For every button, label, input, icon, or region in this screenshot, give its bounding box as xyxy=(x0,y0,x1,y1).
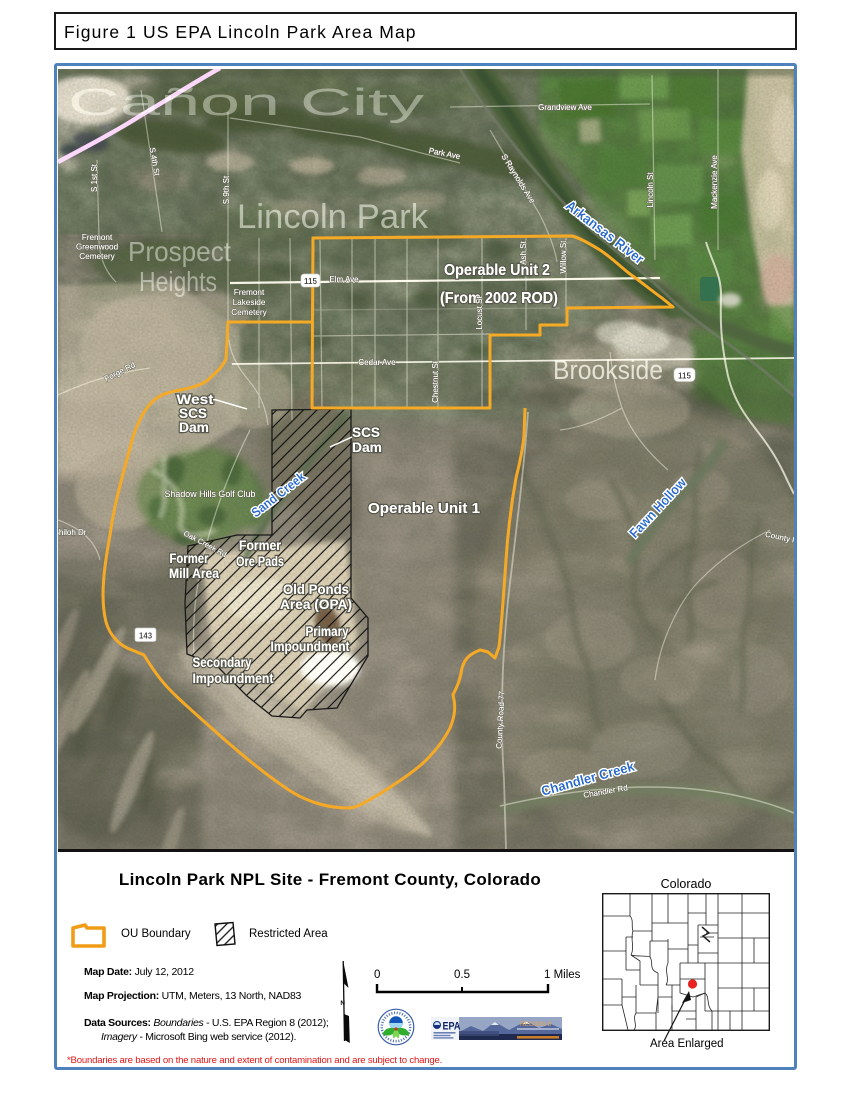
svg-text:Dam: Dam xyxy=(179,419,209,435)
svg-text:Lincoln Park: Lincoln Park xyxy=(237,198,429,236)
svg-text:Locust St: Locust St xyxy=(475,296,484,330)
svg-text:Mackenzie Ave: Mackenzie Ave xyxy=(710,155,719,209)
svg-text:Old Ponds: Old Ponds xyxy=(283,582,349,597)
svg-text:S 9th St: S 9th St xyxy=(222,175,231,204)
svg-text:SCS: SCS xyxy=(352,424,380,440)
svg-text:Cemetery: Cemetery xyxy=(79,252,115,261)
svg-text:Lakeside: Lakeside xyxy=(233,298,266,307)
svg-text:Fremont: Fremont xyxy=(234,288,265,297)
svg-text:Cemetery: Cemetery xyxy=(231,308,267,317)
svg-text:EPA: EPA xyxy=(443,1021,461,1033)
svg-text:1 Miles: 1 Miles xyxy=(544,969,581,981)
svg-text:Grandview Ave: Grandview Ave xyxy=(538,103,592,112)
svg-text:Brookside: Brookside xyxy=(553,355,663,385)
svg-text:Greenwood: Greenwood xyxy=(76,243,119,252)
svg-text:0: 0 xyxy=(374,969,380,981)
svg-text:S 1st St: S 1st St xyxy=(90,163,99,192)
svg-text:Impoundment: Impoundment xyxy=(193,671,274,686)
svg-text:REGION 8: REGION 8 xyxy=(520,1021,551,1028)
svg-text:N: N xyxy=(340,1000,345,1007)
svg-text:Operable Unit 1: Operable Unit 1 xyxy=(368,500,480,517)
svg-text:Impoundment: Impoundment xyxy=(271,639,350,654)
svg-text:Heights: Heights xyxy=(139,266,217,297)
svg-text:0.5: 0.5 xyxy=(454,969,470,981)
svg-text:Area (OPA): Area (OPA) xyxy=(280,597,352,612)
svg-text:Primary: Primary xyxy=(306,624,349,639)
svg-text:Cedar Ave: Cedar Ave xyxy=(358,358,396,367)
svg-text:Ash St: Ash St xyxy=(519,240,528,264)
svg-text:Shadow Hills Golf Club: Shadow Hills Golf Club xyxy=(165,489,256,500)
svg-text:Elm Ave: Elm Ave xyxy=(329,275,359,284)
svg-text:Mill Area: Mill Area xyxy=(169,566,219,581)
svg-text:Lincoln St: Lincoln St xyxy=(646,172,655,208)
svg-text:Willow St: Willow St xyxy=(559,240,568,274)
svg-text:Cañon City: Cañon City xyxy=(68,82,424,124)
svg-text:Former: Former xyxy=(170,551,210,566)
svg-text:Prospect: Prospect xyxy=(128,236,231,267)
svg-text:Operable Unit 2: Operable Unit 2 xyxy=(444,262,550,279)
svg-text:Chestnut St: Chestnut St xyxy=(431,360,440,403)
svg-text:(From 2002 ROD): (From 2002 ROD) xyxy=(440,290,558,307)
svg-text:Fremont: Fremont xyxy=(82,233,113,242)
svg-text:Secondary: Secondary xyxy=(193,655,252,670)
svg-text:Dam: Dam xyxy=(352,439,382,455)
svg-text:Shiloh Dr: Shiloh Dr xyxy=(58,528,87,537)
svg-text:Former: Former xyxy=(239,538,282,553)
svg-text:115: 115 xyxy=(678,372,691,381)
svg-text:Ore Pads: Ore Pads xyxy=(236,554,284,569)
svg-text:115: 115 xyxy=(304,277,317,286)
svg-text:143: 143 xyxy=(139,632,153,641)
